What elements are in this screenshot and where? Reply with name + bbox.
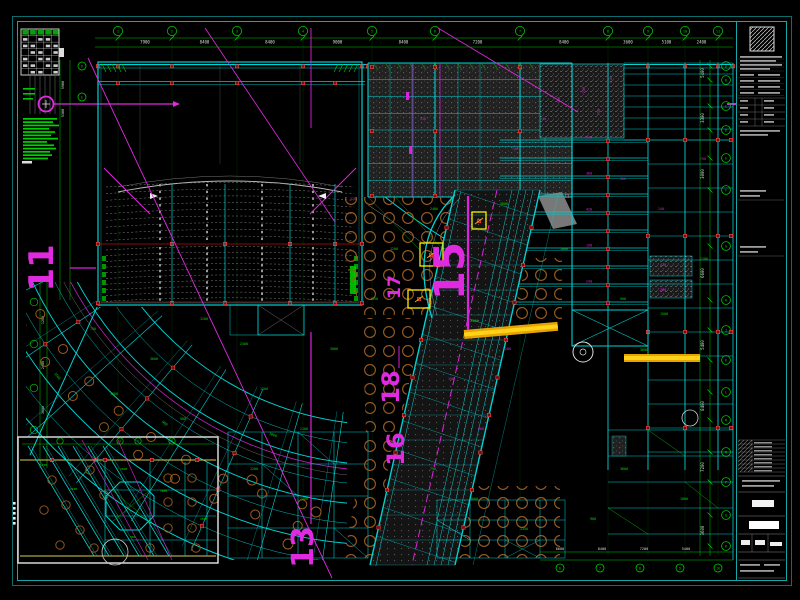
text-blob [764,107,774,109]
column-node [729,138,732,141]
green-dim: 1200 [390,247,398,251]
dim-right: 5400 [700,68,705,78]
text-blob [740,107,748,109]
hole-circle [17,321,26,330]
column-node [729,426,732,429]
beam-label: 360 [586,172,592,176]
seat-mark [206,238,208,240]
green-dim: 900 [620,297,626,301]
seat-mark [261,218,263,220]
text-blob [742,485,774,487]
legend-glyph [31,64,35,67]
grid-bubble-label: E [81,95,83,99]
grid-bubble-label: 7 [599,566,601,570]
seat-row [106,196,354,201]
column-node [96,242,99,245]
green-dim: 3600 [500,202,508,206]
column-node [518,129,521,132]
seat-mark [206,264,208,266]
text-blob [754,454,772,455]
hatch-room [612,436,626,456]
seat-mark [159,204,161,206]
column-node [606,139,609,142]
note-line [23,125,59,127]
green-mark [102,264,106,269]
line [685,482,718,508]
dim-top: 8400 [559,40,569,45]
seat-mark [206,224,208,226]
note-line [23,151,50,153]
legend-tab [59,48,64,57]
column-node [402,413,405,416]
green-dim: 900 [161,420,168,427]
legend-green-cell [30,30,36,35]
hole-circle [251,510,260,519]
text-blob [740,195,760,197]
seat-mark [159,238,161,240]
magenta-label: 510 [420,117,426,121]
seat-row [106,203,354,208]
seat-row [106,189,354,194]
column-node [195,458,198,461]
green-dim: 2400 [470,319,478,323]
grid-bubble [57,438,63,444]
text-blob [740,570,774,572]
column-node [150,458,153,461]
column-node [487,413,490,416]
grid-bubble-label: 6 [559,566,561,570]
octagon-opening [106,482,154,530]
radial-beam [190,389,263,553]
seat-mark [312,281,314,283]
hole-circle [56,541,64,549]
green-dim: 750 [90,327,96,331]
note-line [23,121,53,123]
notes-text [22,76,59,164]
magenta-label: 280 [505,347,511,351]
column-node [716,330,719,333]
seat-row [106,258,354,262]
seat-mark [206,258,208,260]
text-blob [740,74,754,76]
text-blob [740,121,748,123]
seat-mark [159,184,161,186]
green-dim: 2400 [300,497,308,501]
speckle-patch [650,280,692,298]
seat-mark [206,287,208,289]
seat-mark [159,218,161,220]
auditorium-wall-inner [101,65,359,302]
drawing-title-blob [752,500,774,507]
grid-bubble-label: E [725,156,727,160]
magenta-mark [409,146,412,154]
magenta-label: 420 [350,197,356,201]
callout-arrow [173,101,180,107]
legend-glyph [23,58,27,61]
seat-mark [261,281,263,283]
green-dim: 3000 [470,497,478,501]
seat-mark [312,184,314,186]
column-node [433,129,436,132]
dim-left: 3600 [41,406,45,414]
note-line [23,88,35,90]
text-blob [740,64,782,66]
green-dim: 3000 [330,347,338,351]
dim-right: 3300 [700,113,705,123]
grid-bubble-label: 5 [371,30,373,34]
legend-glyph [23,45,27,48]
radial-beam [0,283,136,384]
seat-row [106,236,354,241]
grid-bubble [30,298,38,306]
text-blob [754,470,772,471]
seat-mark [159,253,161,255]
inset-caption-glyph [13,512,16,515]
seat-mark [159,231,161,233]
seat-mark [206,218,208,220]
seat-mark [261,276,263,278]
note-line [23,93,35,95]
dim-top: 2400 [697,40,707,45]
green-dim: 1200 [200,317,208,321]
section-number: 15 [425,242,474,300]
magenta-label: 198 [448,377,454,381]
north-mark [22,161,32,164]
text-blob [740,100,748,102]
column-node [606,229,609,232]
legend-green-cell [23,30,29,35]
text-blob [758,80,780,82]
grid-bubble-label: H [725,298,727,302]
green-dim: 1800 [560,247,568,251]
inset-diagonal [46,446,112,556]
green-dim: 1500 [53,372,61,381]
green-dim: 1500 [260,387,268,391]
seat-mark [206,270,208,272]
grid-bubble-label: G [725,244,727,248]
grid-bubble-label: 8 [607,30,609,34]
magenta-mark [406,92,409,100]
legend-glyph [53,64,57,67]
seat-mark [261,258,263,260]
seat-row [106,298,354,302]
seat-mark [261,238,263,240]
grid-bubble-label: B [725,78,727,82]
hole-circle [311,507,321,517]
seat-mark [206,191,208,193]
column-node [370,65,373,68]
legend-green-cell [38,30,44,35]
text-blob [764,564,780,566]
text-blob [758,92,780,94]
column-node [606,175,609,178]
column-node [10,365,13,368]
column-node [646,426,649,429]
seat-mark [312,247,314,249]
column-node [683,426,686,429]
text-blob [764,100,774,102]
green-mark [102,280,106,285]
note-line [23,144,54,146]
legend-glyph [38,38,42,41]
hole-circle [40,506,48,514]
seat-mark [312,197,314,199]
seat-row [106,281,354,285]
grid-bubble-label: C [725,104,727,108]
legend-green-cell [45,30,51,35]
section-number: 11 [22,244,62,291]
green-dim: 900 [590,517,596,521]
column-node [606,247,609,250]
text-blob [758,74,780,76]
structural-plan-canvas: 1234567891011790084008400900084007200840… [0,0,800,600]
hole-circle [59,344,68,353]
grid-bubble-label: 10 [716,566,720,570]
bar-inner [624,356,700,360]
seat-mark [159,264,161,266]
seat-mark [261,191,263,193]
column-node [385,488,388,491]
note-line [23,98,33,100]
seat-mark [312,270,314,272]
green-dim: 2400 [70,487,77,491]
column-node [116,81,119,84]
section-number: 13 [286,526,321,568]
inset-caption-glyph [13,507,16,510]
column-node [716,426,719,429]
column-node [606,211,609,214]
note-line [23,128,49,130]
text-blob [758,86,780,88]
seat-row [106,216,354,221]
seat-mark [206,253,208,255]
green-dim: 2400 [430,207,438,211]
grid-bubble-label: 10 [683,30,687,34]
inset-caption-glyph [13,502,16,505]
hole-circle [134,450,143,459]
seat-mark [312,293,314,295]
seat-mark [206,293,208,295]
speckle-block [540,64,624,138]
seat-mark [206,298,208,300]
text-blob [740,68,770,70]
magenta-label: 750 [597,109,601,115]
seat-row [106,183,354,188]
green-dim: 1800 [160,489,167,493]
seat-row [106,264,354,268]
inset-diagonal [28,446,94,556]
radial-beam [28,316,162,436]
green-dim: 1200 [250,467,258,471]
grid-bubble-label: K [725,358,728,362]
magenta-label: 280 [660,288,666,292]
column-node [496,376,499,379]
dim-bottom: 7200 [640,547,648,551]
legend-glyph [46,38,50,41]
grid-bubble-label: P [725,480,727,484]
column-node [646,138,649,141]
legend-glyph [38,58,42,61]
column-node [377,526,380,529]
text-blob [740,246,766,248]
column-node [301,81,304,84]
legend-glyph [31,51,35,54]
dim-top: 8400 [200,40,210,45]
seat-mark [159,258,161,260]
dim-bottom: 8400 [598,547,606,551]
line [608,508,648,534]
green-mark [102,288,106,293]
seat-mark [159,293,161,295]
column-node [513,301,516,304]
seat-mark [206,231,208,233]
legend-glyph [31,71,35,74]
hole-circle [99,423,108,432]
seat-mark [206,197,208,199]
line [262,464,298,496]
inset-caption-glyph [13,517,16,520]
hole-circle [188,474,196,482]
green-dim: 3600 [640,348,648,352]
section-number: 18 [377,370,405,403]
magenta-label: 750 [512,147,518,151]
note-line [23,138,58,140]
green-mark [102,272,106,277]
text-blob [740,56,782,58]
green-mark [102,296,106,301]
text-blob [740,190,766,192]
green-dim: 1200 [40,463,47,467]
seat-mark [159,247,161,249]
grid-bubble-label: 7 [519,30,521,34]
seat-mark [261,204,263,206]
legend-glyph [23,64,27,67]
column-node [565,194,568,197]
legend-green-cell [53,30,59,35]
column-node [504,338,507,341]
green-dim: 1500 [660,312,668,316]
seat-row [106,286,354,290]
dim-bottom: 5400 [682,547,690,551]
seat-row [106,223,354,228]
seat-mark [159,281,161,283]
grid-bubble-label: 1 [117,30,119,34]
radial-beam [181,386,258,549]
grid-bubble-label: 11 [716,30,720,34]
column-node [419,338,422,341]
column-node [716,234,719,237]
grid-bubble-label: N [725,450,727,454]
cad-sheet: 1234567891011790084008400900084007200840… [0,0,800,600]
magenta-label: 240 [540,117,546,121]
ring-beam [66,200,356,443]
seat-mark [312,231,314,233]
text-blob [740,86,754,88]
seat-mark [159,197,161,199]
green-dim: 3600 [620,467,628,471]
column-node [235,81,238,84]
magenta-label: 360 [620,177,626,181]
green-dim: 900 [180,417,186,421]
seat-mark [159,287,161,289]
seat-mark [206,276,208,278]
text-blob [754,450,772,451]
seat-mark [312,276,314,278]
thin-arc [35,209,353,476]
grid-bubble-label: R [725,544,728,548]
green-dim: 1800 [680,497,688,501]
green-dim: 900 [130,535,136,539]
seat-mark [261,184,263,186]
dim-top: 7200 [473,40,483,45]
inset-diagonal [91,446,157,556]
magenta-label: 240 [658,207,664,211]
grid-bubble-label: D [81,64,83,68]
column-node [77,320,80,323]
line [298,432,334,464]
legend-glyph [46,58,50,61]
column-node [530,226,533,229]
column-node [170,81,173,84]
seat-row [106,275,354,279]
seat-mark [206,247,208,249]
hatch-cells [738,440,752,472]
seat-mark [206,281,208,283]
legend-table [21,29,64,75]
seat-mark [312,224,314,226]
legend-glyph [53,71,57,74]
seat-mark [206,204,208,206]
seat-mark [261,293,263,295]
seat-mark [261,197,263,199]
grid-bubble-label: M [725,418,727,422]
legend-glyph [46,45,50,48]
seat-mark [261,287,263,289]
note-line [23,118,57,120]
text-blob [764,114,774,116]
column-node [683,330,686,333]
green-dim: 1350 [370,297,378,301]
green-dim: 1800 [110,392,118,396]
text-blob [740,60,776,62]
note-line [23,131,55,133]
column-node [729,234,732,237]
text-blob [755,540,765,545]
note-line [23,135,51,137]
opening-circle [580,349,586,355]
green-dim: 2100 [300,427,308,431]
column-node [606,283,609,286]
dim-top: 8400 [399,40,409,45]
arc-circle [102,539,128,565]
beam-label: 240 [586,280,592,284]
title-block [727,27,785,578]
column-node [729,330,732,333]
column-node [233,451,236,454]
opening-circle [573,342,593,362]
grid-bubble-label: 6 [434,30,436,34]
text-blob [740,564,760,566]
column-node [96,301,99,304]
inset-detail: 45612002400360018009001500 [13,437,218,565]
text-blob [741,540,750,545]
seat-mark [261,211,263,213]
seat-mark [261,253,263,255]
seat-mark [312,298,314,300]
column-node [103,458,106,461]
seat-mark [261,224,263,226]
seat-row [106,229,354,234]
